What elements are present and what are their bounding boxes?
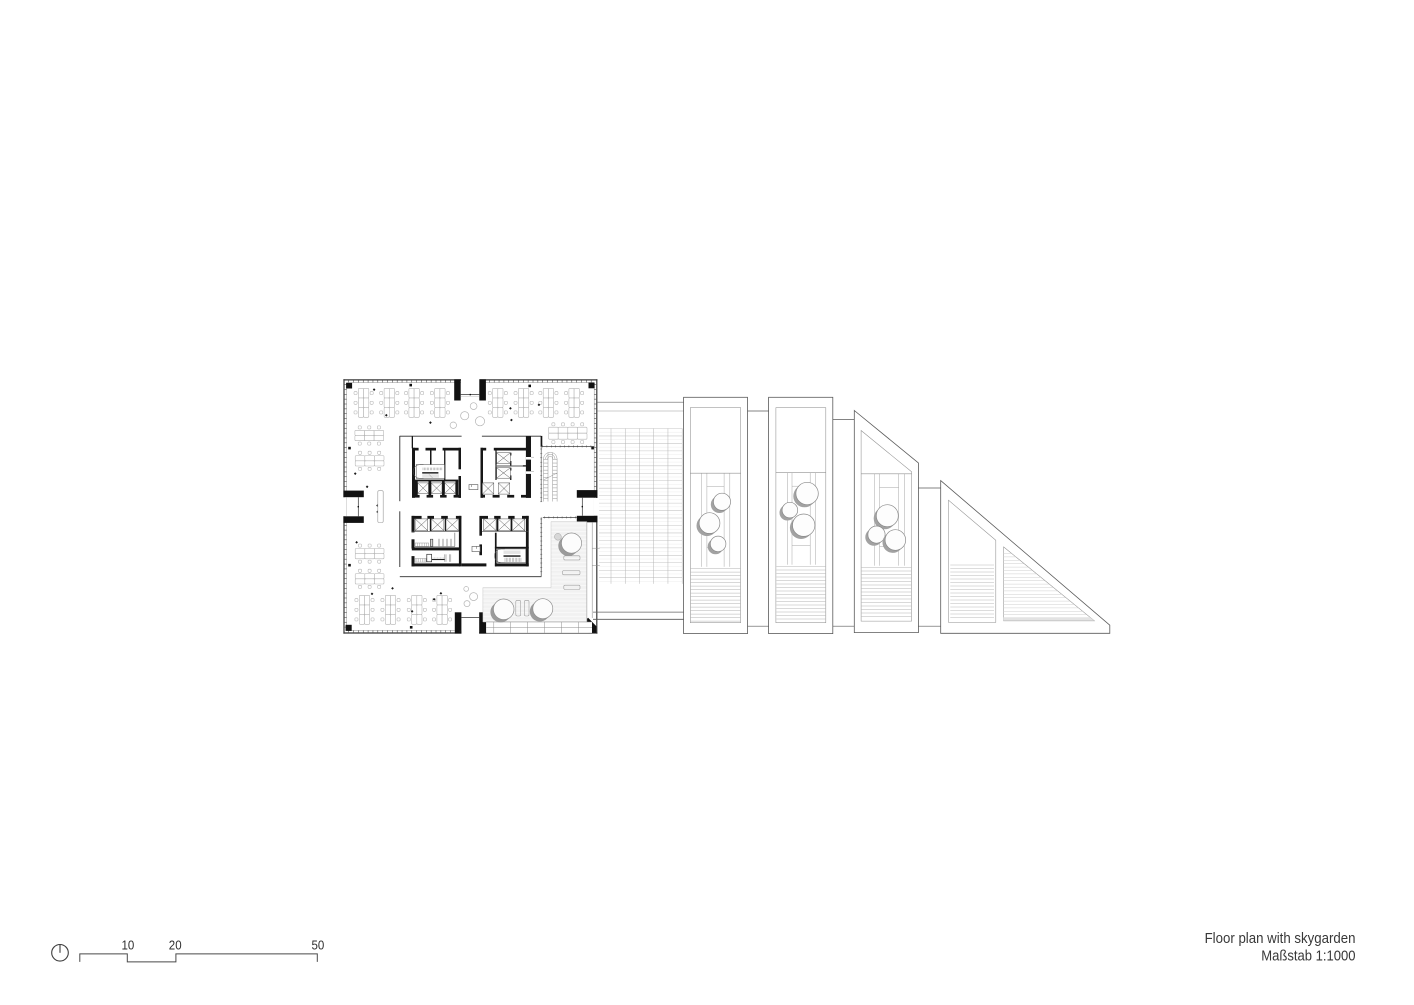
- svg-text:10: 10: [122, 937, 135, 952]
- svg-text:Floor plan with skygarden: Floor plan with skygarden: [1205, 931, 1356, 947]
- svg-text:50: 50: [312, 937, 325, 952]
- svg-text:Maßstab 1:1000: Maßstab 1:1000: [1261, 948, 1355, 964]
- svg-text:20: 20: [169, 937, 182, 952]
